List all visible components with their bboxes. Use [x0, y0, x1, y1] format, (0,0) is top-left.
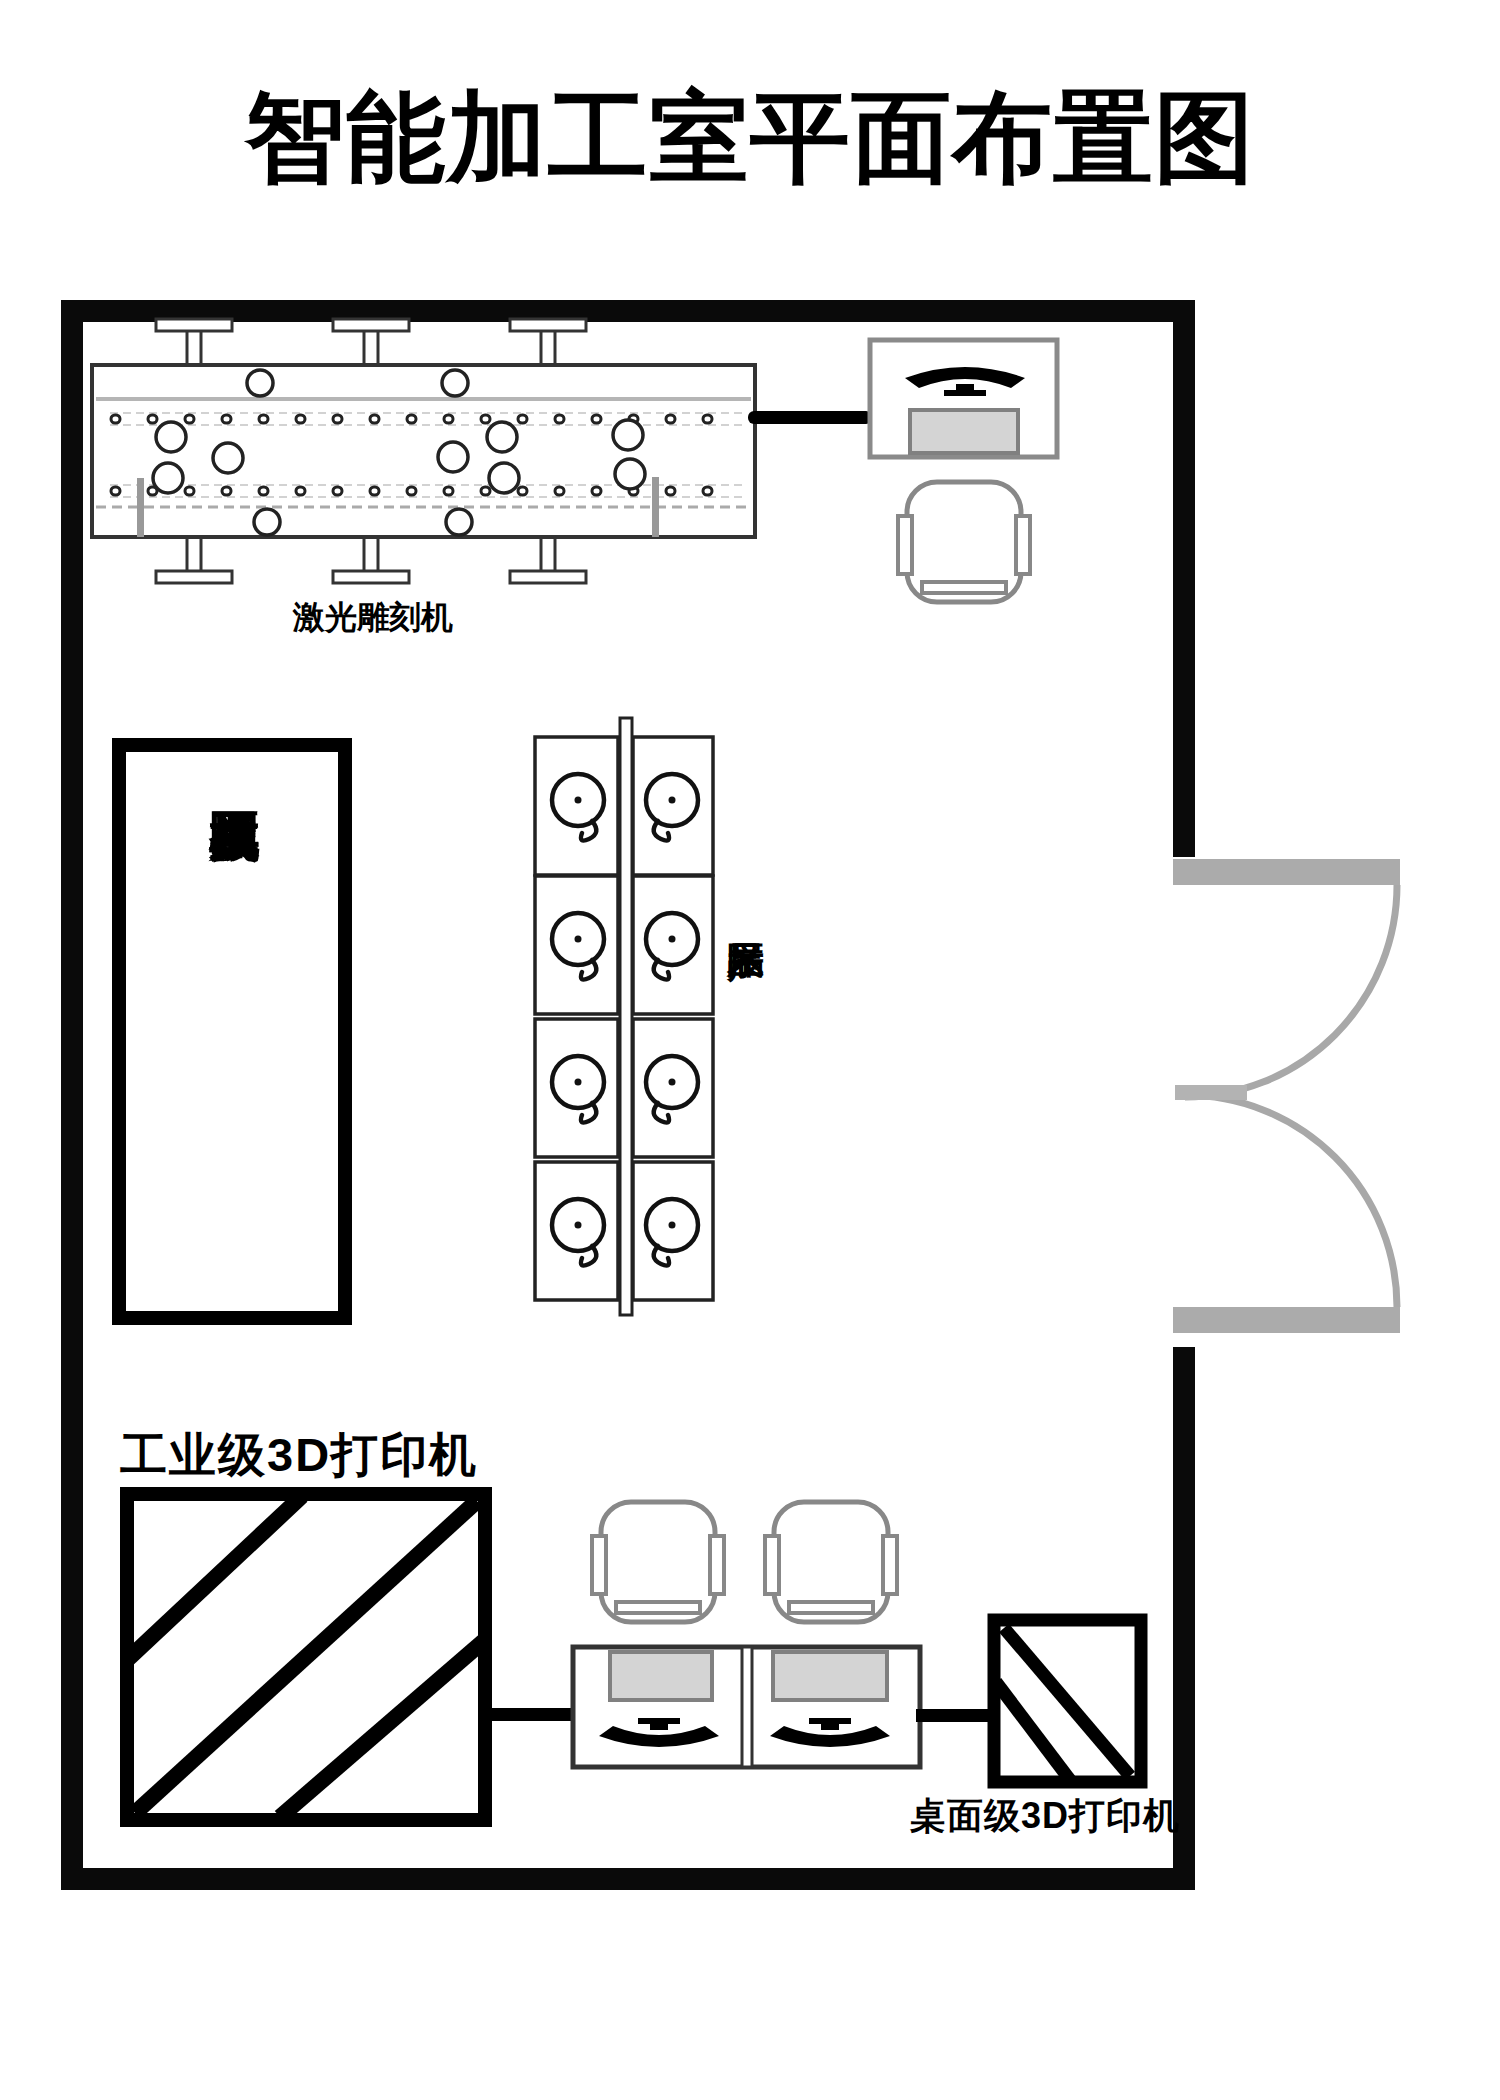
label-desktop-3d-printer: 桌面级3D打印机 [910, 1792, 1180, 1841]
floor-plan-drawing [0, 0, 1500, 2100]
keyboard [910, 410, 1018, 453]
workstation-desks [573, 1647, 920, 1767]
label-laser-engraver: 激光雕刻机 [293, 596, 453, 640]
desktop-3d-printer [994, 1620, 1141, 1782]
connector-desks-desktop-printer [916, 1709, 990, 1722]
industrial-3d-printer [127, 1494, 486, 1820]
keyboard [773, 1652, 887, 1700]
operator-desk [870, 340, 1057, 457]
product-display-zone [535, 718, 713, 1315]
operator-chair [898, 482, 1030, 602]
page-title: 智能加工室平面布置图 [0, 72, 1500, 207]
floor-plan-page: 智能加工室平面布置图 激光雕刻机 机械加工类工具摆放区 产品展示区 工业级3D打… [0, 0, 1500, 2100]
label-industrial-3d-printer: 工业级3D打印机 [120, 1424, 478, 1487]
connector-laser-desk [748, 411, 872, 424]
double-door [1173, 859, 1400, 1333]
workstation-chairs [592, 1502, 897, 1622]
tool-storage-zone [119, 745, 345, 1318]
keyboard [610, 1652, 712, 1700]
connector-printer-desks [488, 1708, 576, 1721]
laser-engraver [92, 319, 755, 583]
